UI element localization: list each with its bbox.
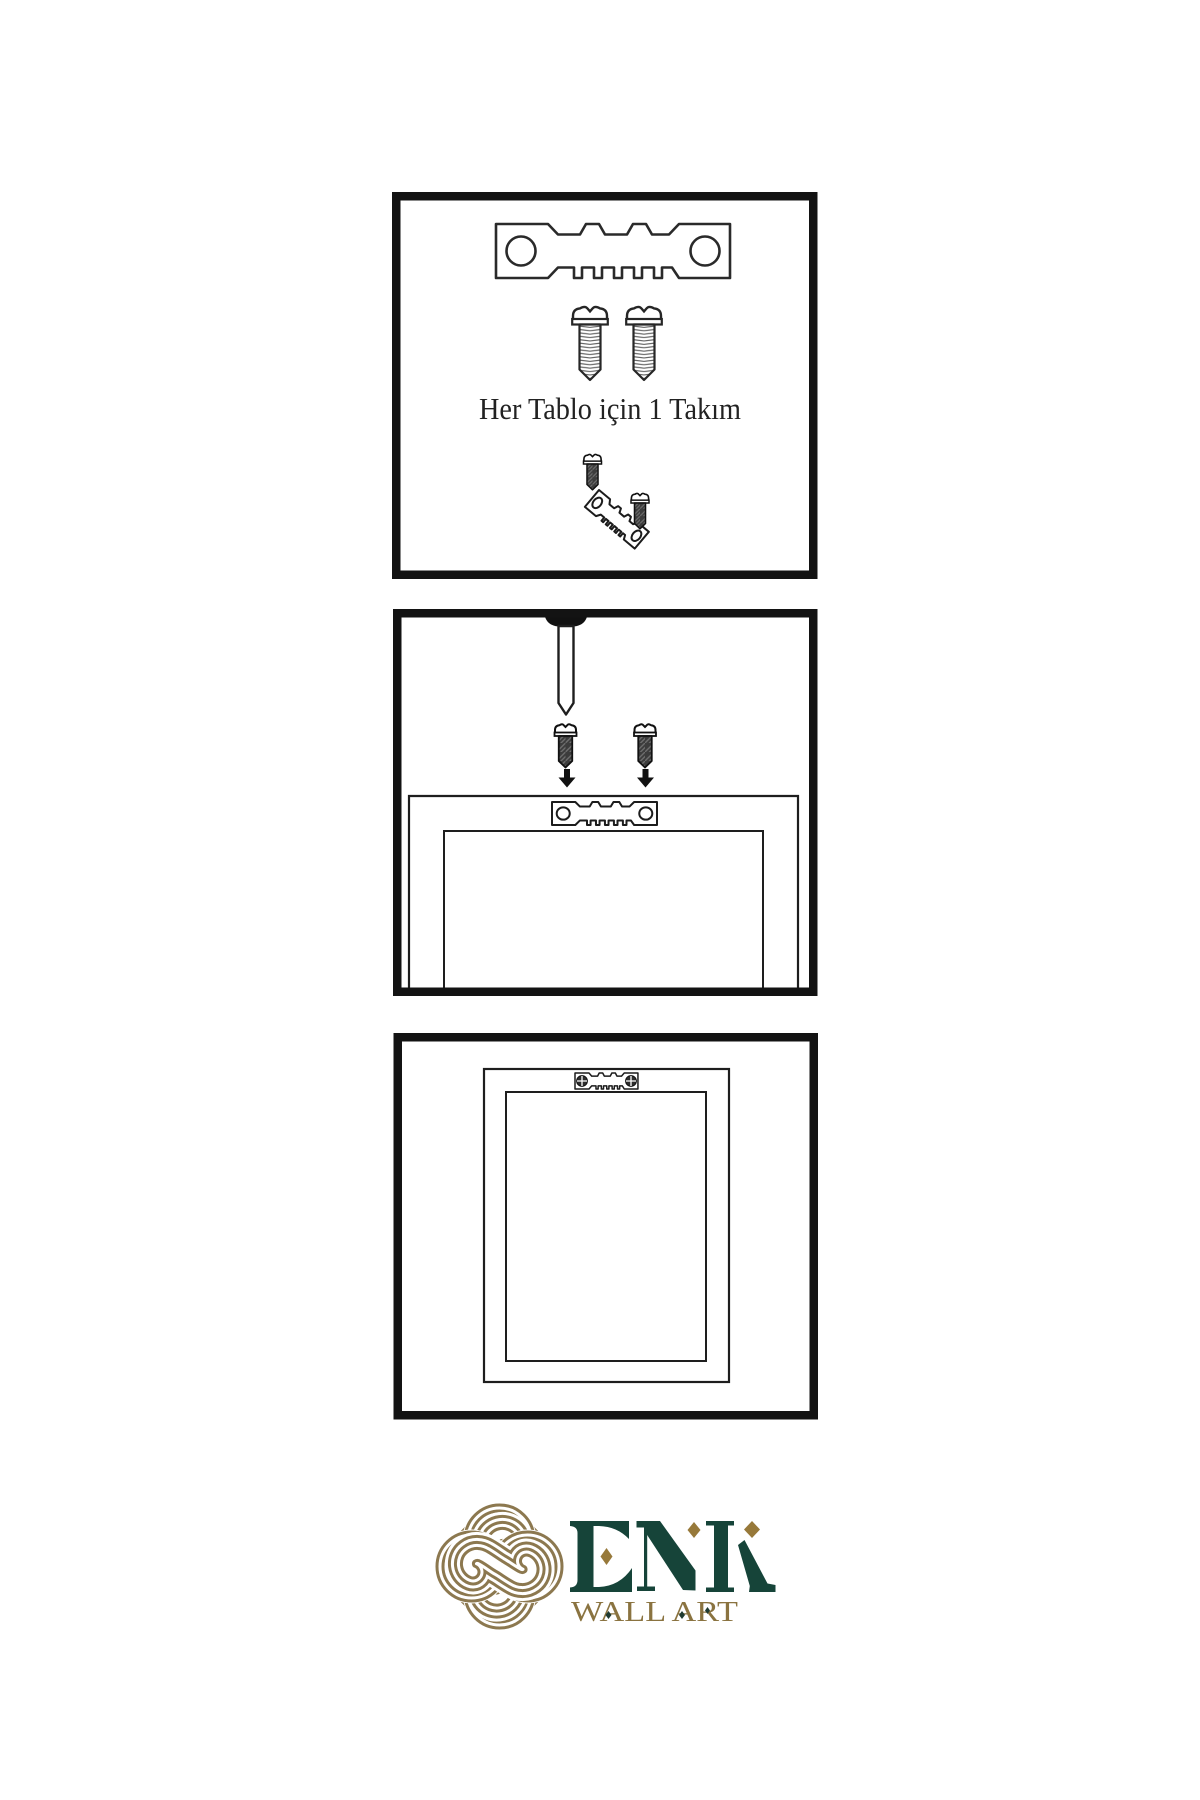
svg-text:Her Tablo için 1 Takım: Her Tablo için 1 Takım <box>479 391 741 426</box>
svg-text:WALL ART: WALL ART <box>571 1597 738 1628</box>
